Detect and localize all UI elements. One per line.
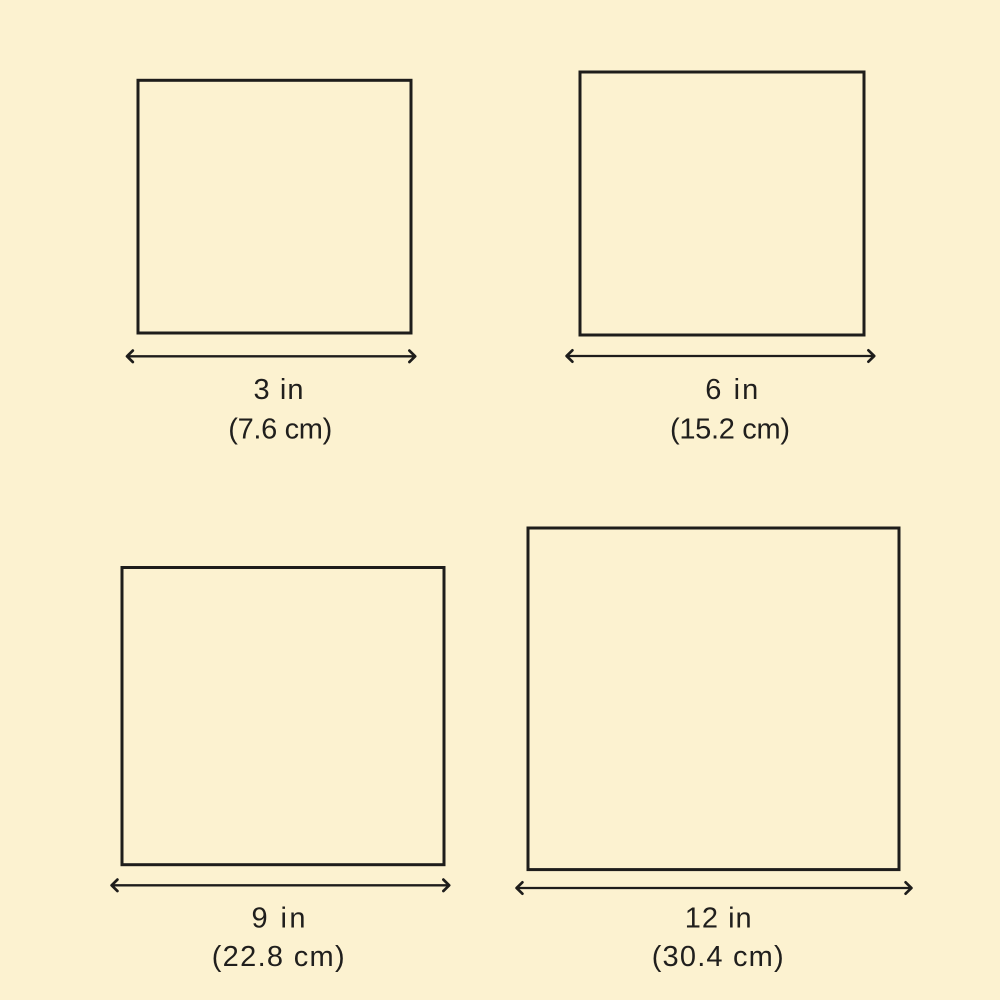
svg-text:(15.2 cm): (15.2 cm) <box>670 414 790 446</box>
svg-text:3 in: 3 in <box>254 374 304 406</box>
svg-text:(22.8 cm): (22.8 cm) <box>212 941 345 973</box>
svg-text:(30.4 cm): (30.4 cm) <box>652 941 784 973</box>
svg-text:12 in: 12 in <box>685 903 752 935</box>
svg-text:(7.6 cm): (7.6 cm) <box>228 414 332 446</box>
